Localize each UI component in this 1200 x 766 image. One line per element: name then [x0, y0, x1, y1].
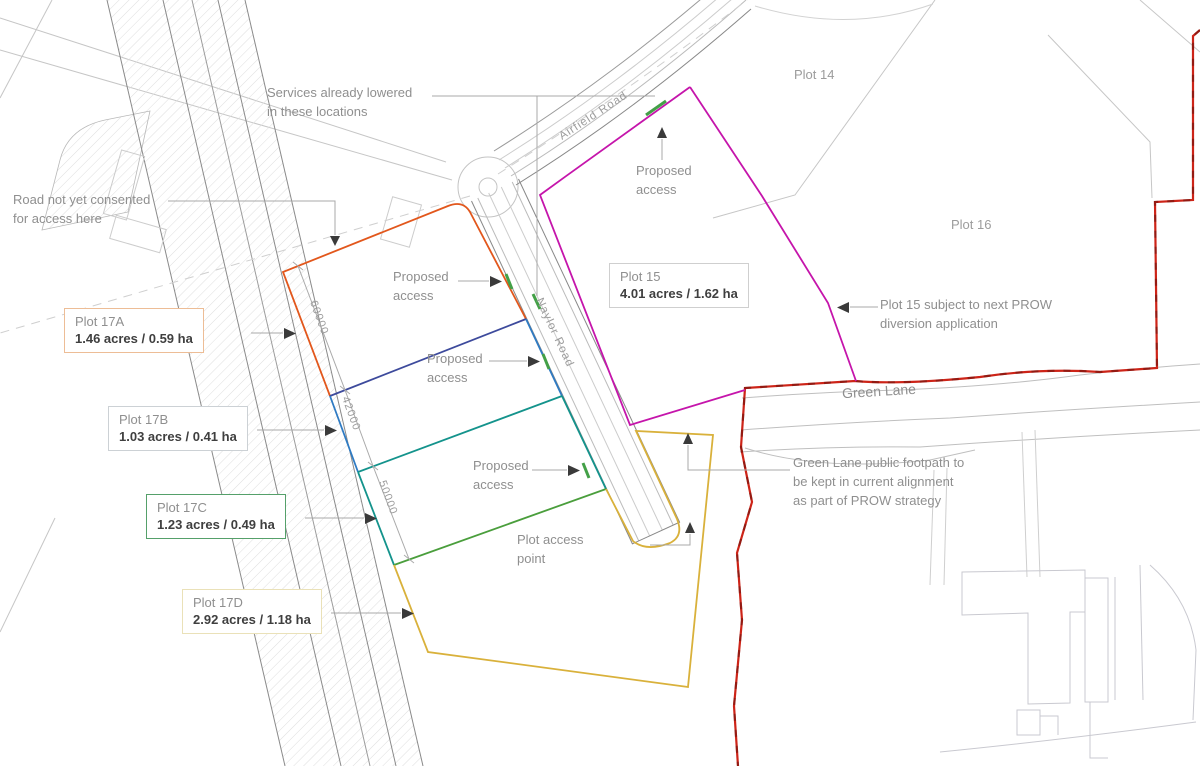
plot-14-label: Plot 14: [794, 67, 834, 82]
plan-linework: Airfield Road Naylor Road 60000 42000 50…: [0, 0, 1200, 766]
prow-diversion-note: Plot 15 subject to next PROW diversion a…: [880, 296, 1100, 334]
plot-17d-area: 2.92 acres / 1.18 ha: [193, 612, 311, 627]
plot-15-label-box: Plot 15 4.01 acres / 1.62 ha: [609, 263, 749, 308]
plot-17c-title: Plot 17C: [157, 500, 275, 515]
site-boundary-red: [734, 30, 1200, 766]
dimension-17c: 50000: [376, 479, 399, 517]
proposed-access-note-17b: Proposed access: [427, 350, 483, 388]
road-not-consented-note: Road not yet consented for access here: [13, 191, 183, 229]
proposed-access-note-plot15: Proposed access: [636, 162, 692, 200]
plot-17d-title: Plot 17D: [193, 595, 311, 610]
site-plan: Airfield Road Naylor Road 60000 42000 50…: [0, 0, 1200, 766]
plot-17c-label-box: Plot 17C 1.23 acres / 0.49 ha: [146, 494, 286, 539]
plot-15-area: 4.01 acres / 1.62 ha: [620, 286, 738, 301]
plot-17b-label-box: Plot 17B 1.03 acres / 0.41 ha: [108, 406, 248, 451]
plot-access-point-note: Plot access point: [517, 531, 583, 569]
plot-17b-outline: [330, 319, 562, 472]
plot-17c-area: 1.23 acres / 0.49 ha: [157, 517, 275, 532]
plot-15-title: Plot 15: [620, 269, 738, 284]
plot-17a-label-box: Plot 17A 1.46 acres / 0.59 ha: [64, 308, 204, 353]
proposed-access-note-17c: Proposed access: [473, 457, 529, 495]
plot-17a-title: Plot 17A: [75, 314, 193, 329]
proposed-access-note-17a: Proposed access: [393, 268, 449, 306]
plot-17a-area: 1.46 acres / 0.59 ha: [75, 331, 193, 346]
plot-17d-label-box: Plot 17D 2.92 acres / 1.18 ha: [182, 589, 322, 634]
footpath-note: Green Lane public footpath to be kept in…: [793, 454, 993, 511]
plot-16-label: Plot 16: [951, 217, 991, 232]
buildings-cluster: [940, 565, 1196, 758]
plot-17b-title: Plot 17B: [119, 412, 237, 427]
services-note: Services already lowered in these locati…: [267, 84, 447, 122]
plot-17b-area: 1.03 acres / 0.41 ha: [119, 429, 237, 444]
airfield-road-label: Airfield Road: [557, 90, 630, 143]
